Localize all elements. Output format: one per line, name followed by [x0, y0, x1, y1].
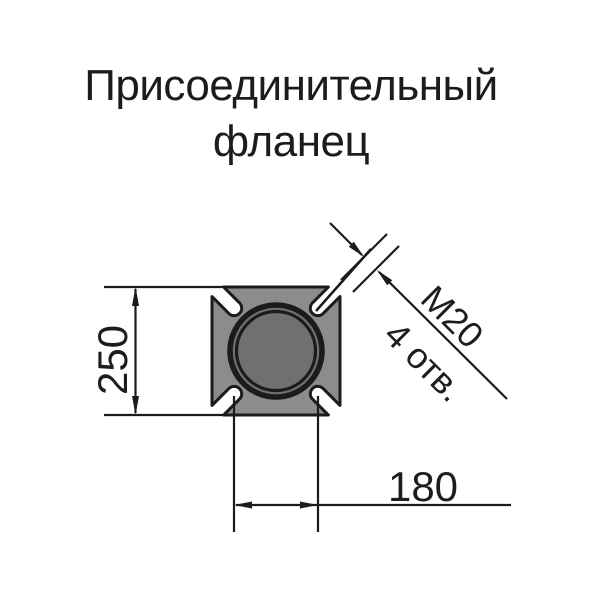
dim-width-arrow-left — [234, 502, 252, 509]
flange-drawing — [0, 0, 600, 600]
dim-width-arrow-right — [300, 502, 318, 509]
center-bore-outer-ring — [230, 305, 322, 397]
page-canvas: Присоединительный фланец 250 180 М20 4 о… — [0, 0, 600, 600]
dim-label-width: 180 — [388, 463, 458, 511]
dim-label-height: 250 — [89, 325, 137, 395]
dim-height-arrow-down — [132, 396, 139, 415]
dim-height-arrow-up — [132, 287, 139, 306]
